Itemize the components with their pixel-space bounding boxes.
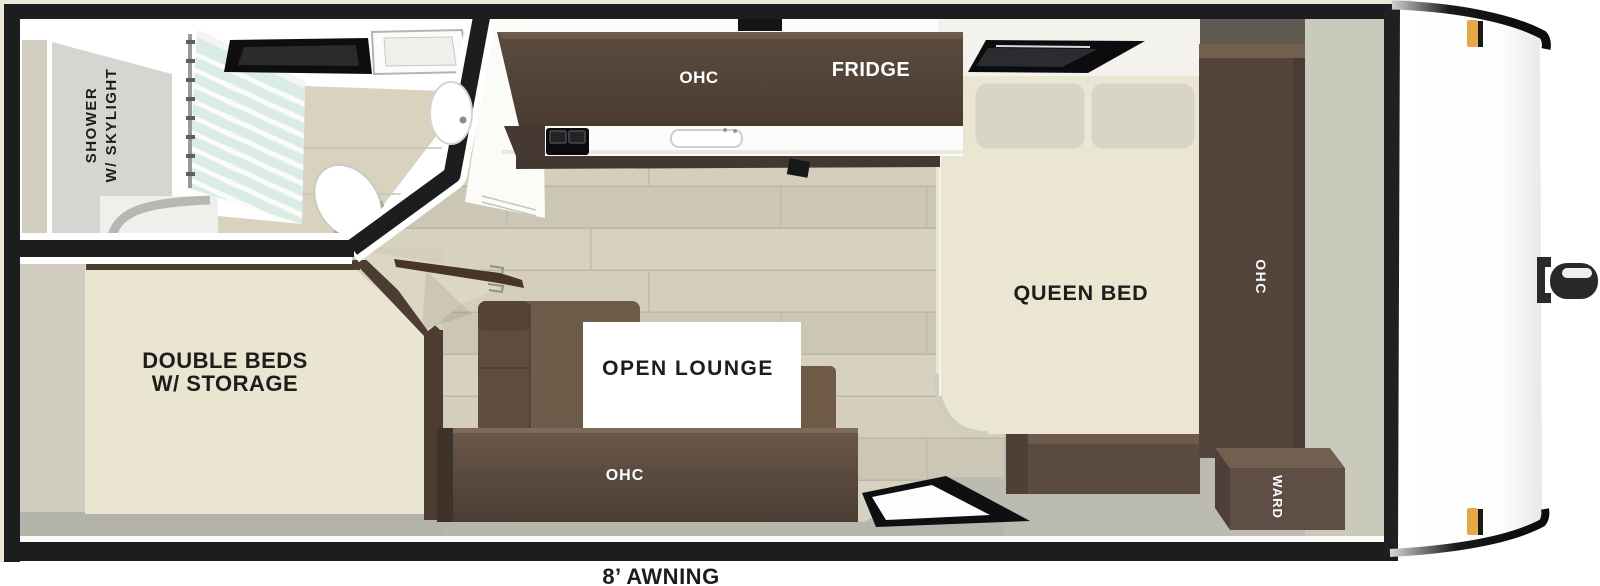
svg-text:WARD: WARD [1270, 475, 1285, 519]
svg-text:OHC: OHC [606, 467, 645, 484]
svg-text:W/ SKYLIGHT: W/ SKYLIGHT [103, 68, 120, 183]
svg-text:SHOWER: SHOWER [83, 87, 100, 164]
svg-text:8’ AWNING: 8’ AWNING [602, 564, 719, 586]
svg-text:QUEEN BED: QUEEN BED [1013, 281, 1148, 305]
svg-text:W/ STORAGE: W/ STORAGE [152, 371, 298, 396]
svg-text:FRIDGE: FRIDGE [832, 59, 911, 81]
svg-text:DOUBLE BEDS: DOUBLE BEDS [142, 348, 308, 373]
svg-text:OHC: OHC [679, 68, 718, 87]
svg-text:OPEN LOUNGE: OPEN LOUNGE [602, 357, 774, 380]
svg-text:OHC: OHC [1253, 259, 1269, 295]
